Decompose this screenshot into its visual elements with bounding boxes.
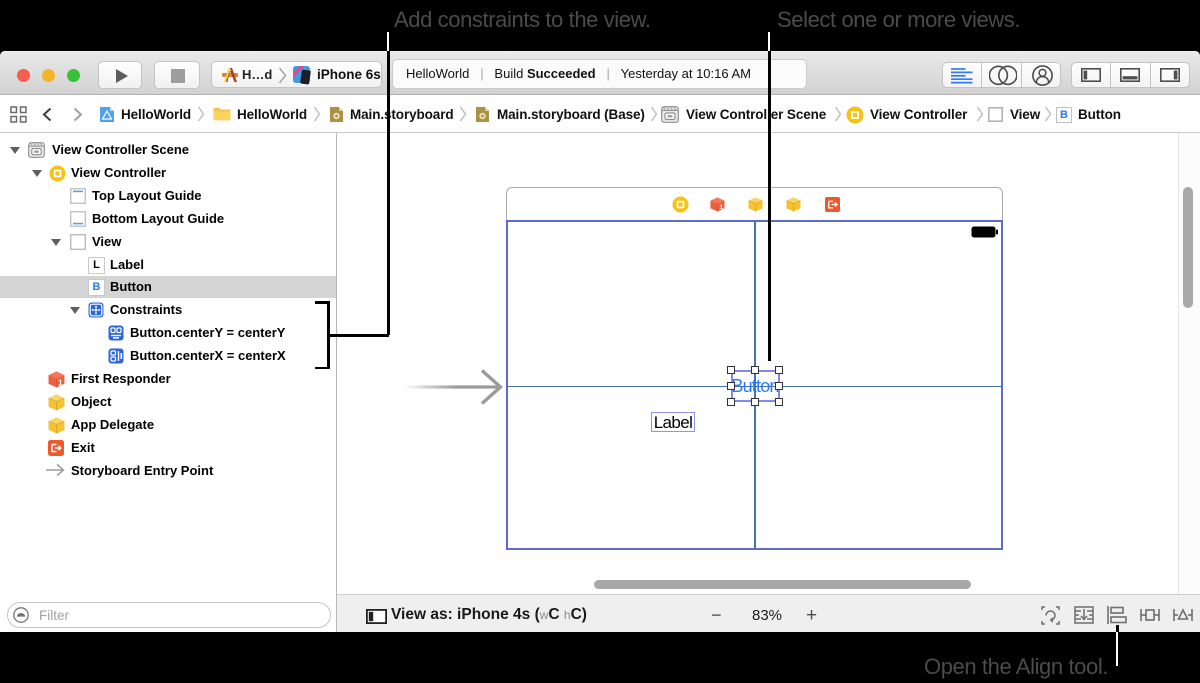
svg-text:1: 1 xyxy=(719,204,723,211)
svg-text:1: 1 xyxy=(58,378,63,387)
